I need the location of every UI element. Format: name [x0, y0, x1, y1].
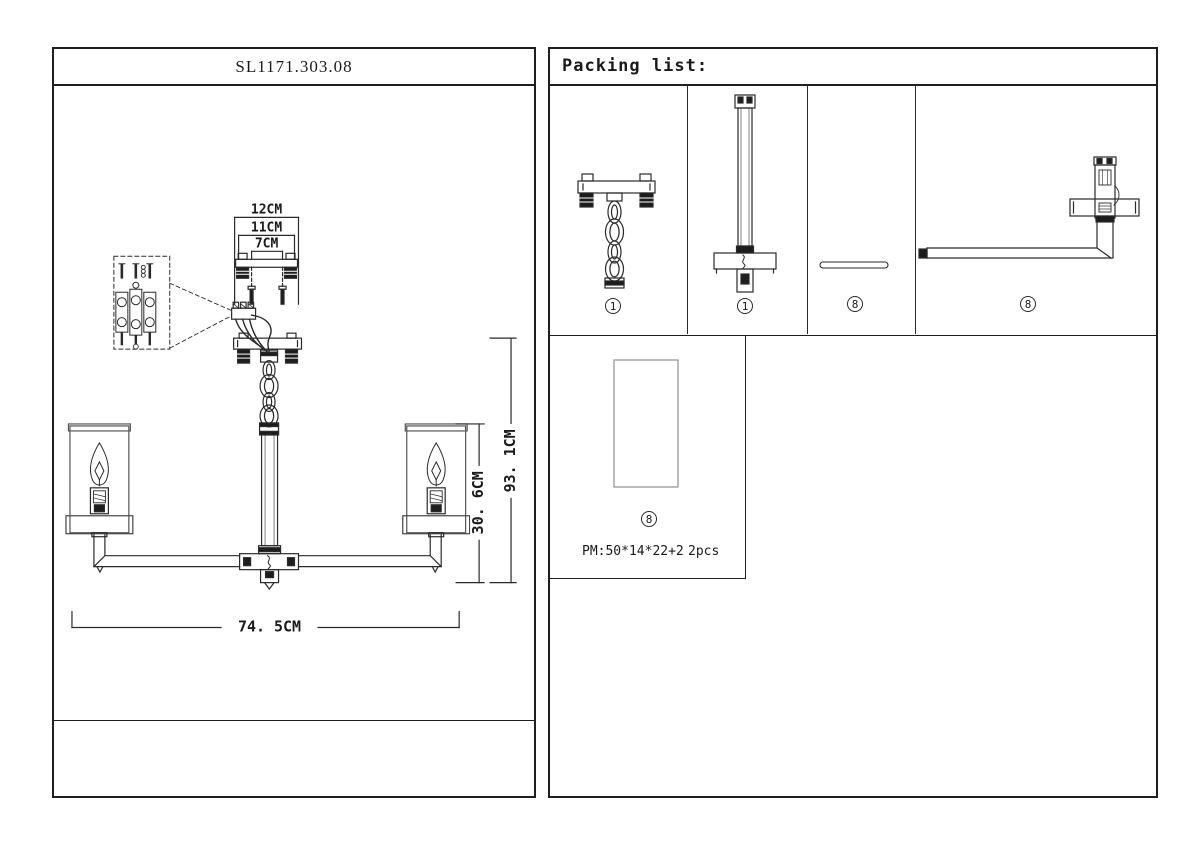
qty-badge-connector-strip: 8 [847, 296, 863, 312]
product-code: SL1171.303.08 [54, 49, 534, 86]
packing-list-panel: Packing list: [548, 47, 1158, 798]
packing-item-stem-canopy: 1 [688, 86, 808, 334]
template-end-screw-right [285, 267, 297, 278]
dim-overall-height: 93. 1CM [490, 338, 520, 582]
fixture-front-view: 12CM 11CM 7CM [54, 86, 534, 722]
stem-rod [259, 435, 281, 554]
dim-overall-height-label: 93. 1CM [501, 429, 519, 492]
lamp-assembly-right [403, 424, 470, 537]
dim-shade-height-label: 30. 6CM [469, 471, 487, 534]
suspension-chain [260, 350, 279, 435]
product-drawing-panel: SL1171.303.08 12CM 11CM 7CM [52, 47, 536, 798]
packing-item-connector-strip: 8 [808, 86, 916, 334]
glass-shade-icon [550, 336, 744, 577]
dim-fixture-width-label: 74. 5CM [238, 618, 301, 636]
stem-canopy-icon [688, 86, 806, 334]
anchor-screw-right [279, 286, 286, 304]
lamp-assembly-left [66, 424, 133, 537]
qty-badge-stem-canopy: 1 [737, 298, 753, 314]
anchor-screw-left [248, 286, 255, 304]
dim-fixture-width: 74. 5CM [72, 612, 459, 636]
qty-badge-bracket-chain: 1 [605, 298, 621, 314]
packing-list-title: Packing list: [550, 49, 1156, 86]
glass-box-size-note: PM:50*14*22+2 [582, 544, 684, 559]
dim-hole-spacing-label: 7CM [255, 236, 279, 251]
wiring-detail-box [114, 256, 170, 349]
bracket-chain-icon [550, 86, 686, 334]
dim-shade-section-height: 30. 6CM [456, 424, 488, 583]
connector-strip-icon [808, 86, 914, 334]
glass-box-pieces: 2pcs [688, 544, 719, 559]
drawing-sheet: SL1171.303.08 12CM 11CM 7CM [0, 0, 1200, 848]
center-hub [240, 554, 299, 589]
packing-item-arm-socket: 8 [916, 86, 1156, 334]
packing-item-glass-shade: 8 PM:50*14*22+2 2pcs [550, 336, 746, 579]
dim-bracket-width-label: 12CM [251, 202, 282, 217]
left-panel-footer [54, 720, 534, 796]
dim-plate-width-label: 11CM [251, 220, 282, 235]
ceiling-bracket [234, 333, 302, 363]
packing-list-row: 1 1 [550, 86, 1156, 336]
packing-item-bracket-chain: 1 [550, 86, 688, 334]
detail-pointer-lines [170, 283, 231, 348]
terminal-strip-blocks [116, 289, 156, 335]
fixture-drawing-svg: 12CM 11CM 7CM [54, 86, 534, 722]
mounting-template-drawing: 12CM 11CM 7CM [235, 202, 299, 304]
arm-socket-icon [916, 86, 1154, 334]
template-end-screw-left [237, 267, 249, 278]
qty-badge-arm-socket: 8 [1020, 296, 1036, 312]
qty-badge-glass-shade: 8 [641, 511, 657, 527]
